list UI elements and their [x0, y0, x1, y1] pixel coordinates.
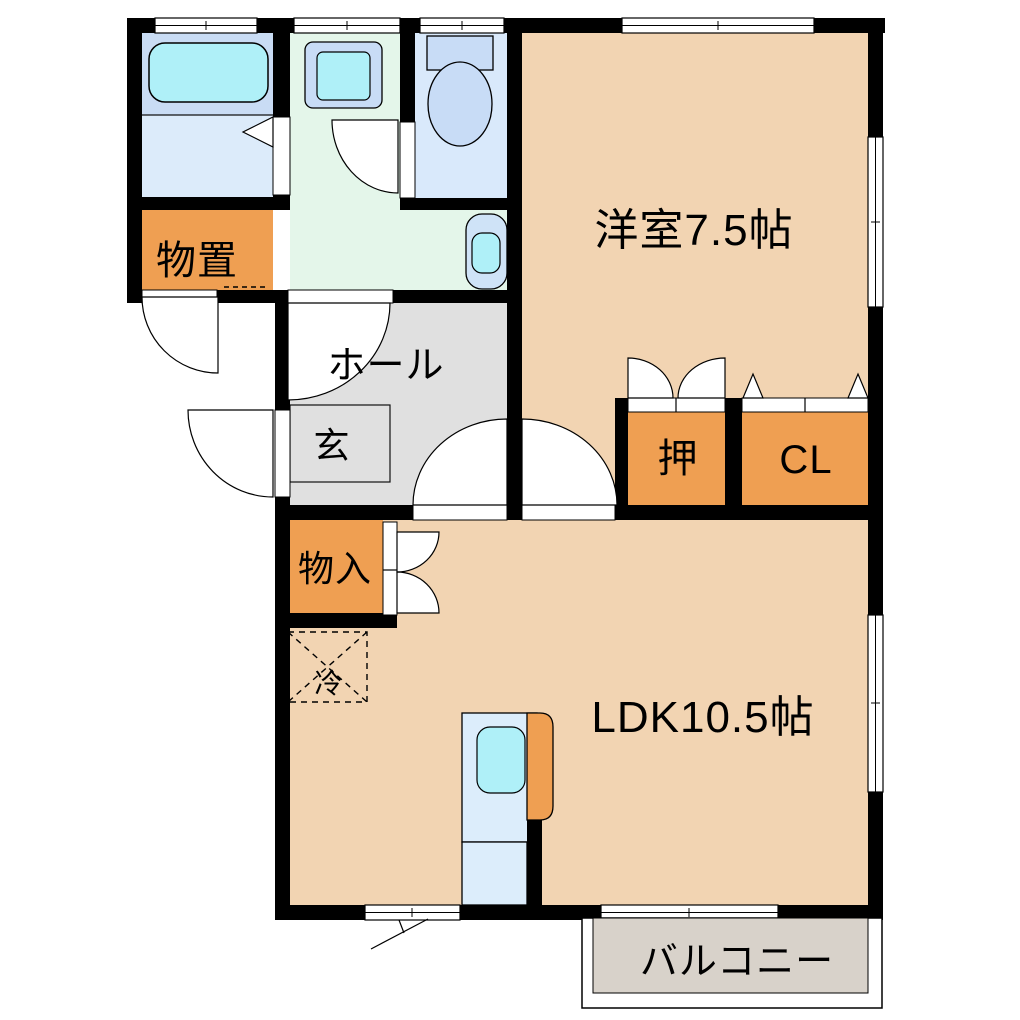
storage-door-swing	[142, 297, 218, 373]
wall-inner-storage-bottom	[275, 613, 397, 628]
wall-bath-right-upper	[273, 18, 290, 117]
bathtub	[149, 43, 268, 102]
window-toilet	[420, 18, 504, 33]
western-room-label: 洋室7.5帖	[594, 209, 793, 253]
inner-storage-label: 物入	[298, 551, 372, 587]
ldk-label: LDK10.5帖	[591, 696, 814, 740]
balcony-label: バルコニー	[640, 943, 834, 981]
hall-label: ホール	[327, 347, 444, 385]
refrigerator-label: 冷	[314, 670, 343, 698]
wall-toilet-bottom	[400, 198, 522, 210]
window-western-room-right	[868, 137, 883, 307]
storage-label: 物置	[156, 241, 238, 281]
floor-plan: 洋室7.5帖 LDK10.5帖 ホール 玄 物置 物入 押 CL バルコニー 冷	[0, 0, 1020, 1020]
window-bathroom	[155, 18, 257, 33]
kitchen-sink	[477, 727, 525, 793]
wall-bottom-a	[275, 905, 365, 920]
westernroom-ldk-door-opening	[522, 505, 615, 520]
wall-washroom-toilet	[400, 18, 415, 122]
entrance-door-swing	[188, 410, 273, 497]
oshiire-label: 押	[658, 439, 699, 479]
window-washroom	[294, 18, 400, 33]
wall-closet-pier-mid	[725, 398, 742, 505]
wall-bath-bottom	[127, 197, 290, 210]
entrance-door-opening	[275, 410, 290, 497]
kitchen-counter-lower	[462, 842, 527, 905]
wall-seg-a	[127, 290, 142, 303]
wall-ldk-top-right	[615, 505, 868, 520]
window-western-room-top	[622, 18, 814, 33]
window-diagonal-mark	[371, 919, 428, 949]
bath-door-opening	[273, 117, 290, 195]
kitchen-counter-end	[527, 713, 553, 820]
window-ldk-bottom	[365, 905, 460, 920]
toilet-bowl	[428, 62, 492, 146]
window-annotation	[371, 919, 428, 949]
hall-ldk-door-opening	[413, 505, 507, 520]
wall-center-vertical	[507, 18, 522, 520]
window-ldk-right	[868, 615, 883, 792]
washroom-door-opening	[288, 290, 393, 303]
wall-bottom-b	[460, 905, 601, 920]
vanity-basin	[472, 233, 500, 273]
wall-kitchen-stub	[527, 820, 542, 905]
washstand-basin	[317, 52, 370, 100]
wall-bath-right-lower	[273, 195, 290, 210]
wall-ldk-top-left	[275, 505, 413, 520]
wall-left-upper	[127, 18, 142, 303]
floor-plan-drawing	[0, 0, 1020, 1020]
entrance-label: 玄	[313, 428, 350, 464]
toilet-door-opening	[400, 122, 415, 198]
wall-seg-c	[393, 290, 522, 303]
cl-closet-label: CL	[779, 440, 832, 480]
inner-storage-opening	[383, 522, 397, 615]
window-diagonal-tick	[399, 920, 404, 933]
wall-ldk-left	[275, 520, 290, 920]
wall-closet-pier-left	[615, 398, 628, 505]
